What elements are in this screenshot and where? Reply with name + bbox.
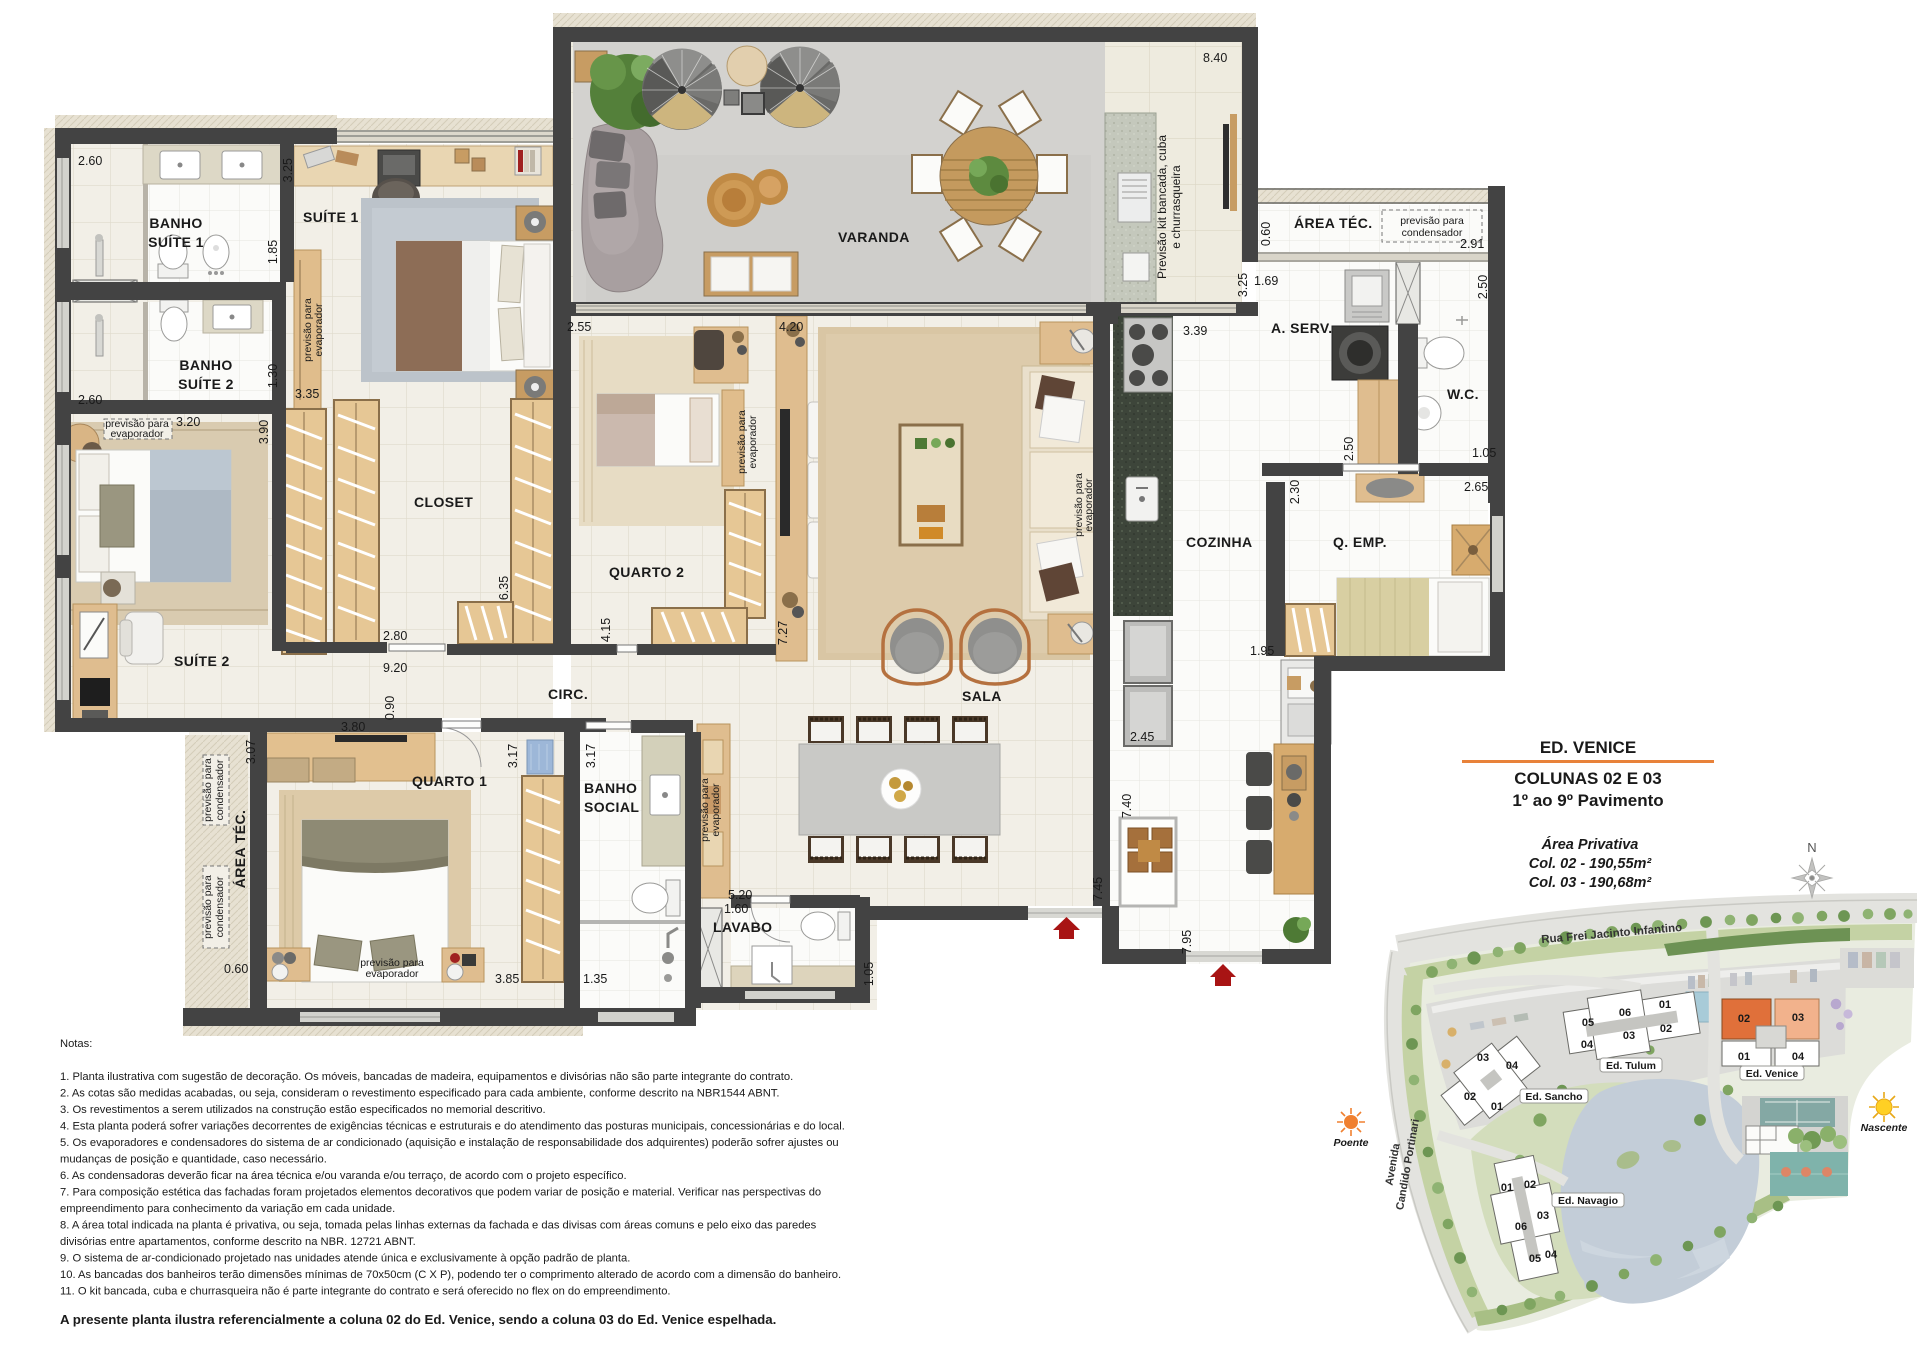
svg-text:2.80: 2.80 [383,629,407,643]
svg-text:01: 01 [1738,1051,1750,1063]
svg-text:CIRC.: CIRC. [548,686,588,702]
svg-text:Área Privativa: Área Privativa [1541,836,1639,853]
svg-text:01: 01 [1659,999,1671,1011]
svg-text:SUÍTE 2: SUÍTE 2 [178,376,234,392]
svg-text:2.50: 2.50 [1476,275,1490,299]
svg-text:COLUNAS 02 E 03: COLUNAS 02 E 03 [1514,769,1661,788]
svg-text:9. O sistema de ar-condicionad: 9. O sistema de ar-condicionado projetad… [60,1253,630,1265]
svg-text:5.20: 5.20 [728,888,752,902]
svg-text:SUÍTE 1: SUÍTE 1 [303,209,359,225]
svg-text:2.65: 2.65 [1464,480,1488,494]
svg-text:02: 02 [1660,1023,1672,1035]
svg-text:previsão para: previsão para [1400,215,1464,227]
svg-text:evaporador: evaporador [365,968,419,980]
svg-text:W.C.: W.C. [1447,386,1479,402]
svg-text:ÁREA TÉC.: ÁREA TÉC. [232,810,248,889]
svg-text:previsão para: previsão para [202,758,214,822]
svg-text:evaporador: evaporador [313,303,325,357]
svg-text:3.07: 3.07 [244,740,258,764]
svg-text:1º ao 9º Pavimento: 1º ao 9º Pavimento [1512,791,1663,810]
svg-text:condensador: condensador [1402,227,1463,239]
svg-text:2.55: 2.55 [567,320,591,334]
svg-text:02: 02 [1524,1179,1536,1191]
svg-text:3.17: 3.17 [506,744,520,768]
svg-text:3.80: 3.80 [341,720,365,734]
svg-text:Col. 02 - 190,55m²: Col. 02 - 190,55m² [1529,856,1653,872]
svg-text:SALA: SALA [962,688,1002,704]
svg-text:evaporador: evaporador [747,415,759,469]
svg-text:2.91: 2.91 [1460,237,1484,251]
svg-text:1.69: 1.69 [1254,274,1278,288]
svg-text:3.39: 3.39 [1183,324,1207,338]
svg-text:11. O kit bancada, cuba e chur: 11. O kit bancada, cuba e churrasqueira … [60,1286,671,1298]
svg-text:10. As bancadas dos banheiros: 10. As bancadas dos banheiros terão dime… [60,1269,841,1281]
svg-text:5. Os evaporadores e condensad: 5. Os evaporadores e condensadores do si… [60,1137,839,1149]
svg-text:05: 05 [1529,1253,1541,1265]
svg-text:Poente: Poente [1333,1137,1368,1149]
svg-text:05: 05 [1582,1017,1594,1029]
svg-text:3.25: 3.25 [1236,273,1250,297]
svg-text:01: 01 [1491,1101,1503,1113]
svg-text:1. Planta ilustrativa com suge: 1. Planta ilustrativa com sugestão de de… [60,1071,793,1083]
svg-text:4. Esta planta poderá sofrer v: 4. Esta planta poderá sofrer variações d… [60,1121,845,1133]
svg-text:BANHO: BANHO [584,780,637,796]
svg-text:Col. 03 - 190,68m²: Col. 03 - 190,68m² [1529,875,1653,891]
svg-text:6. As condensadoras deverão fi: 6. As condensadoras deverão ficar na áre… [60,1170,627,1182]
svg-text:4.15: 4.15 [599,618,613,642]
svg-text:QUARTO 1: QUARTO 1 [412,773,487,789]
svg-text:03: 03 [1477,1052,1489,1064]
svg-text:Ed. Navagio: Ed. Navagio [1558,1195,1618,1207]
svg-text:9.20: 9.20 [383,661,407,675]
svg-text:3.17: 3.17 [584,744,598,768]
svg-text:2.60: 2.60 [78,393,102,407]
svg-text:0.60: 0.60 [1259,222,1273,246]
svg-text:7. Para composição estética da: 7. Para composição estética das fachadas… [60,1187,821,1199]
svg-text:divisórias entre apartamentos,: divisórias entre apartamentos, conforme … [60,1236,416,1248]
svg-text:4.20: 4.20 [779,320,803,334]
svg-text:0.90: 0.90 [383,696,397,720]
svg-text:7.95: 7.95 [1180,930,1194,954]
svg-text:02: 02 [1738,1013,1750,1025]
svg-text:03: 03 [1623,1030,1635,1042]
svg-text:01: 01 [1501,1182,1513,1194]
svg-text:04: 04 [1581,1039,1594,1051]
svg-text:02: 02 [1464,1091,1476,1103]
svg-text:1.85: 1.85 [266,240,280,264]
svg-text:ED. VENICE: ED. VENICE [1540,738,1636,757]
svg-text:Ed. Tulum: Ed. Tulum [1606,1060,1656,1072]
svg-text:condensador: condensador [214,759,226,820]
svg-text:A. SERV.: A. SERV. [1271,320,1333,336]
svg-text:0.60: 0.60 [224,962,248,976]
svg-text:1.95: 1.95 [1250,644,1274,658]
svg-text:COZINHA: COZINHA [1186,534,1253,550]
svg-text:VARANDA: VARANDA [838,229,910,245]
svg-text:1.05: 1.05 [1472,446,1496,460]
svg-text:03: 03 [1792,1012,1804,1024]
svg-text:Notas:: Notas: [60,1038,92,1050]
svg-text:previsão para: previsão para [202,875,214,939]
svg-text:e churrasqueira: e churrasqueira [1169,165,1183,249]
svg-text:evaporador: evaporador [1083,478,1095,532]
svg-text:1.60: 1.60 [724,902,748,916]
svg-text:SOCIAL: SOCIAL [584,799,639,815]
svg-text:QUARTO 2: QUARTO 2 [609,564,684,580]
svg-text:empreendimento para conhecimen: empreendimento para conhecimento da vari… [60,1203,395,1215]
svg-text:8.40: 8.40 [1203,51,1227,65]
svg-text:N: N [1807,840,1816,855]
svg-text:3. Os revestimentos a serem ut: 3. Os revestimentos a serem utilizados n… [60,1104,546,1116]
svg-text:Nascente: Nascente [1861,1122,1908,1134]
svg-text:7.27: 7.27 [776,621,790,645]
svg-text:evaporador: evaporador [110,428,164,440]
svg-text:1.05: 1.05 [862,962,876,986]
svg-text:03: 03 [1537,1210,1549,1222]
svg-text:condensador: condensador [214,876,226,937]
svg-text:1.35: 1.35 [583,972,607,986]
svg-text:BANHO: BANHO [179,357,232,373]
svg-text:06: 06 [1619,1007,1631,1019]
svg-text:04: 04 [1545,1249,1558,1261]
svg-text:2.50: 2.50 [1342,437,1356,461]
svg-text:LAVABO: LAVABO [713,919,772,935]
svg-text:7.45: 7.45 [1091,877,1105,901]
svg-text:3.35: 3.35 [295,387,319,401]
svg-text:evaporador: evaporador [710,783,722,837]
svg-text:SUÍTE 2: SUÍTE 2 [174,653,230,669]
svg-text:6.35: 6.35 [497,576,511,600]
svg-text:8. A área total indicada na pl: 8. A área total indicada na planta é pri… [60,1220,817,1232]
svg-text:04: 04 [1792,1051,1805,1063]
svg-text:7.40: 7.40 [1120,794,1134,818]
svg-text:ÁREA TÉC.: ÁREA TÉC. [1294,215,1373,231]
svg-text:Ed. Sancho: Ed. Sancho [1525,1091,1582,1103]
svg-text:BANHO: BANHO [149,215,202,231]
svg-text:A presente planta ilustra refe: A presente planta ilustra referencialmen… [60,1312,776,1327]
svg-text:Previsão kit bancada, cuba: Previsão kit bancada, cuba [1155,135,1169,279]
svg-text:3.25: 3.25 [281,158,295,182]
svg-text:3.90: 3.90 [257,420,271,444]
svg-text:2. As cotas são medidas acabad: 2. As cotas são medidas acabadas, ou sej… [60,1088,780,1100]
svg-text:CLOSET: CLOSET [414,494,473,510]
svg-text:1.30: 1.30 [266,364,280,388]
svg-text:2.60: 2.60 [78,154,102,168]
svg-text:06: 06 [1515,1221,1527,1233]
svg-text:2.45: 2.45 [1130,730,1154,744]
svg-text:2.30: 2.30 [1288,480,1302,504]
svg-text:Ed. Venice: Ed. Venice [1746,1068,1799,1080]
svg-text:SUÍTE 1: SUÍTE 1 [148,234,204,250]
svg-text:3.85: 3.85 [495,972,519,986]
svg-text:04: 04 [1506,1060,1519,1072]
svg-text:3.20: 3.20 [176,415,200,429]
svg-text:Q. EMP.: Q. EMP. [1333,534,1387,550]
svg-text:mudanças de posição e quantida: mudanças de posição e quantidade, caso n… [60,1154,327,1166]
